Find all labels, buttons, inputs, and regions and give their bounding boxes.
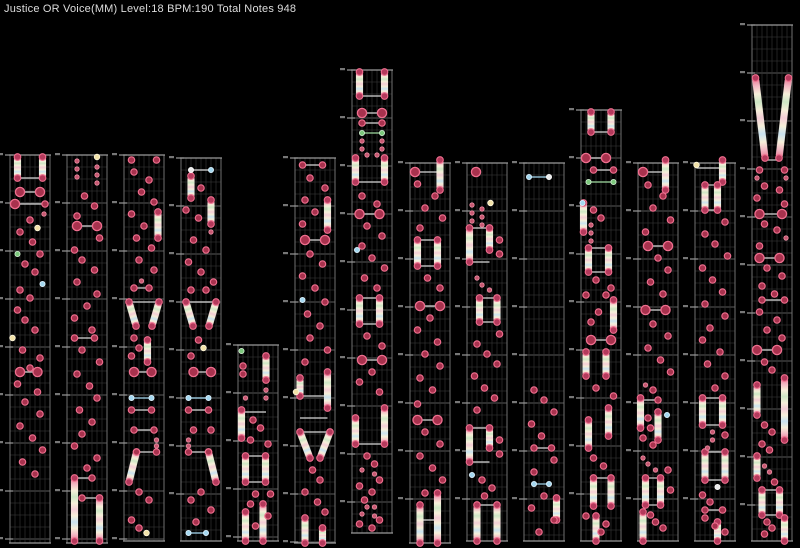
chart-column-9 xyxy=(455,161,508,544)
chart-column-10 xyxy=(512,161,565,541)
chart-column-1 xyxy=(0,153,51,543)
chart-column-13 xyxy=(683,157,736,545)
chart-column-12 xyxy=(626,157,679,545)
chart-column-3 xyxy=(112,153,165,541)
chart-column-7 xyxy=(340,68,393,533)
chart-column-14 xyxy=(740,23,793,544)
chart-column-6 xyxy=(283,156,336,546)
chart-column-5 xyxy=(226,343,279,544)
chart-column-8 xyxy=(398,157,451,547)
chart-svg xyxy=(0,0,800,548)
chart-column-11 xyxy=(569,108,622,544)
chart-column-2 xyxy=(55,153,108,544)
chart-canvas xyxy=(0,0,800,548)
chart-column-4 xyxy=(169,156,222,541)
page-title: Justice OR Voice(MM) Level:18 BPM:190 To… xyxy=(4,3,296,15)
